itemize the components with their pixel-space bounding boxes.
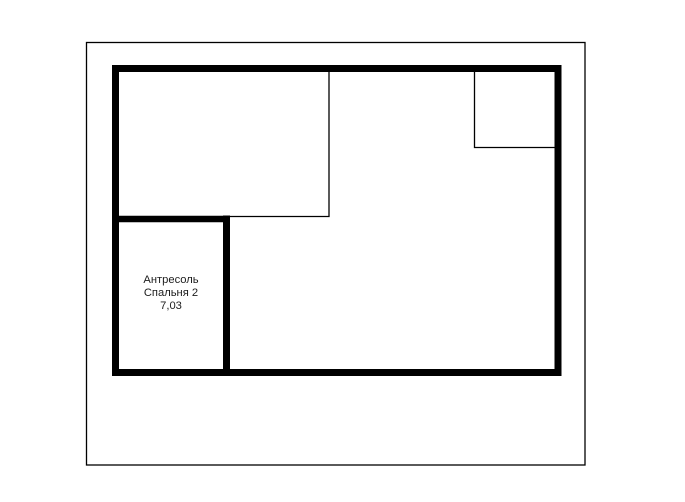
svg-text:Антресоль: Антресоль (143, 274, 198, 286)
svg-text:Спальня 2: Спальня 2 (144, 287, 198, 299)
svg-text:7,03: 7,03 (160, 300, 182, 312)
